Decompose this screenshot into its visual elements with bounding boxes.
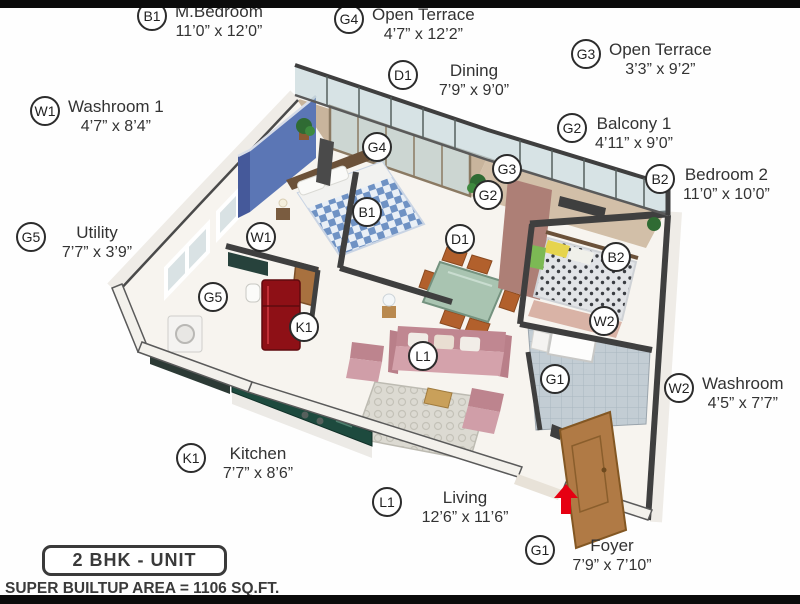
room-dims: 7’7” x 8’6” [214, 464, 302, 484]
room-dims: 7’7” x 3’9” [54, 243, 140, 263]
plan-marker-b2: B2 [601, 242, 631, 272]
room-annotation-b2: B2 Bedroom 2 11’0” x 10’0” [645, 164, 770, 205]
room-dims: 4’7” x 8’4” [68, 117, 164, 137]
plan-marker-g3: G3 [492, 154, 522, 184]
room-name: Foyer [563, 535, 661, 556]
plan-marker-g2: G2 [473, 180, 503, 210]
room-name: Kitchen [214, 443, 302, 464]
room-code-badge: G3 [571, 39, 601, 69]
room-code-badge: K1 [176, 443, 206, 473]
room-annotation-w2: W2 Washroom 4’5” x 7’7” [664, 373, 784, 414]
room-annotation-w1: W1 Washroom 1 4’7” x 8’4” [30, 96, 164, 137]
plan-marker-g4: G4 [362, 132, 392, 162]
room-annotation-l1: L1 Living 12’6” x 11’6” [372, 487, 520, 528]
room-code-badge: G5 [16, 222, 46, 252]
room-dims: 4’7” x 12’2” [372, 25, 475, 45]
room-dims: 11’0” x 12’0” [175, 22, 263, 42]
room-code-badge: D1 [388, 60, 418, 90]
room-dims: 7’9” x 9’0” [426, 81, 522, 101]
room-code-badge: B2 [645, 164, 675, 194]
room-dims: 3’3” x 9’2” [609, 60, 712, 80]
room-code-badge: W1 [30, 96, 60, 126]
plan-marker-g5: G5 [198, 282, 228, 312]
room-code-badge: W2 [664, 373, 694, 403]
room-annotation-g2: G2 Balcony 1 4’11” x 9’0” [557, 113, 673, 154]
plan-marker-b1: B1 [352, 197, 382, 227]
room-name: Washroom 1 [68, 96, 164, 117]
floor-plan-page: G4 G3 G2 B1 D1 W1 B2 G5 K1 W2 L1 G1 B1 M… [0, 0, 800, 604]
letterbox-bar-bottom [0, 595, 800, 604]
plan-marker-w1: W1 [246, 222, 276, 252]
room-name: Living [410, 487, 520, 508]
room-dims: 7’9” x 7’10” [563, 556, 661, 576]
unit-type-box: 2 BHK - UNIT [42, 545, 227, 576]
room-name: Bedroom 2 [683, 164, 770, 185]
room-dims: 11’0” x 10’0” [683, 185, 770, 205]
letterbox-bar-top [0, 0, 800, 8]
room-name: Open Terrace [609, 39, 712, 60]
room-dims: 12’6” x 11’6” [410, 508, 520, 528]
room-code-badge: G4 [334, 4, 364, 34]
room-dims: 4’11” x 9’0” [595, 134, 673, 154]
room-annotation-g4: G4 Open Terrace 4’7” x 12’2” [334, 4, 475, 45]
room-code-badge: G1 [525, 535, 555, 565]
room-code-badge: L1 [372, 487, 402, 517]
plan-marker-l1: L1 [408, 341, 438, 371]
room-dims: 4’5” x 7’7” [702, 394, 784, 414]
room-annotation-g3: G3 Open Terrace 3’3” x 9’2” [571, 39, 712, 80]
room-code-badge: G2 [557, 113, 587, 143]
plan-marker-d1: D1 [445, 224, 475, 254]
room-annotation-g5: G5 Utility 7’7” x 3’9” [16, 222, 140, 263]
room-annotation-g1: G1 Foyer 7’9” x 7’10” [525, 535, 661, 576]
plan-marker-w2: W2 [589, 306, 619, 336]
plan-marker-g1: G1 [540, 364, 570, 394]
room-name: Dining [426, 60, 522, 81]
room-annotation-d1: D1 Dining 7’9” x 9’0” [388, 60, 522, 101]
room-name: Balcony 1 [595, 113, 673, 134]
room-name: Washroom [702, 373, 784, 394]
plan-marker-k1: K1 [289, 312, 319, 342]
room-annotation-k1: K1 Kitchen 7’7” x 8’6” [176, 443, 302, 484]
room-name: Utility [54, 222, 140, 243]
